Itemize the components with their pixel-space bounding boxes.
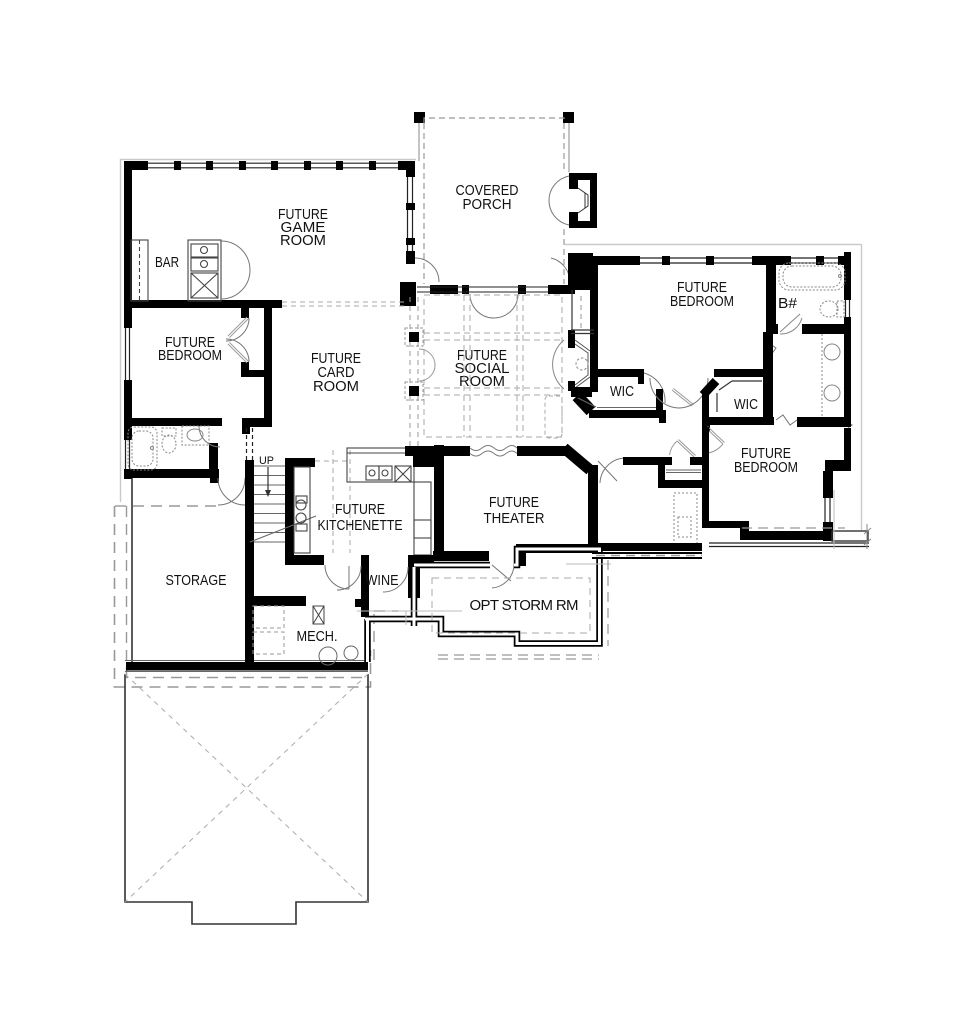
- svg-text:B#: B#: [778, 295, 798, 312]
- svg-text:MECH.: MECH.: [297, 628, 338, 645]
- svg-text:PORCH: PORCH: [463, 196, 512, 213]
- svg-text:BAR: BAR: [155, 254, 179, 271]
- svg-text:UP: UP: [259, 455, 274, 467]
- svg-text:WIC: WIC: [610, 383, 634, 400]
- svg-text:ROOM: ROOM: [280, 232, 326, 249]
- svg-text:FUTURE: FUTURE: [489, 494, 539, 511]
- svg-text:KITCHENETTE: KITCHENETTE: [318, 517, 403, 534]
- svg-text:THEATER: THEATER: [484, 510, 545, 527]
- svg-text:ROOM: ROOM: [459, 373, 505, 390]
- svg-text:ROOM: ROOM: [313, 378, 359, 395]
- svg-text:OPT STORM RM: OPT STORM RM: [470, 597, 579, 614]
- svg-text:BEDROOM: BEDROOM: [158, 347, 222, 364]
- svg-text:WINE: WINE: [366, 572, 399, 589]
- svg-text:STORAGE: STORAGE: [166, 572, 227, 589]
- svg-text:WIC: WIC: [734, 396, 758, 413]
- svg-text:FUTURE: FUTURE: [335, 501, 385, 518]
- svg-text:BEDROOM: BEDROOM: [670, 293, 734, 310]
- svg-text:BEDROOM: BEDROOM: [734, 459, 798, 476]
